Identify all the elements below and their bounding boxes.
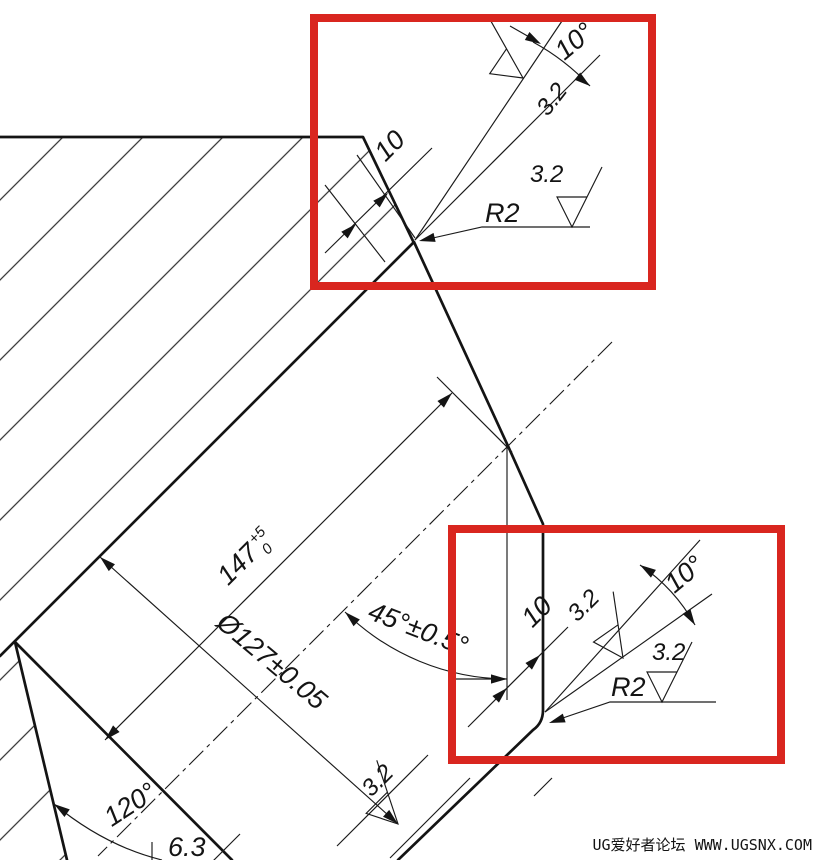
arrowhead xyxy=(491,674,507,683)
hatch-remnant-line xyxy=(212,834,240,860)
hatch-remnant-line xyxy=(390,778,470,858)
dim-text-fillet-radius-bottom: R2 xyxy=(611,672,646,702)
arrowhead xyxy=(525,32,543,48)
fillet-callout-top: R2 3.2 xyxy=(418,161,602,245)
roughness-symbol-icon xyxy=(557,167,602,227)
dim-text-taper-angle-bottom: 10° xyxy=(659,549,710,598)
dim-text-fillet-radius-top: R2 xyxy=(485,198,520,228)
roughness-symbol-icon xyxy=(465,20,540,91)
dim-text-cone-angle: 45°±0.5° xyxy=(364,596,472,661)
dim-text-diameter: Ø127±0.05 xyxy=(210,606,333,716)
r2-leader-line xyxy=(424,227,590,240)
drawing-canvas: 10 10° 3.2 R2 3.2 147 +5 0 xyxy=(0,0,818,860)
vertex-extension-line xyxy=(437,377,512,452)
dim-cone-angle: 45°±0.5° xyxy=(342,596,507,684)
roughness-value: 3.2 xyxy=(530,161,563,188)
groove-callouts: 120° 6.3 3.2 xyxy=(51,759,419,860)
dim-text-land-width: 10 xyxy=(515,590,557,632)
roughness-value: 3.2 xyxy=(562,584,605,627)
fillet-callout-bottom: R2 3.2 xyxy=(548,639,716,727)
dim-tol-lower: 0 xyxy=(259,540,277,558)
dim-text-taper-angle-top: 10° xyxy=(549,16,600,65)
roughness-value: 3.2 xyxy=(531,78,573,121)
watermark-text: UG爱好者论坛 WWW.UGSNX.COM xyxy=(593,836,813,854)
arrowhead xyxy=(575,73,593,90)
dim-text-groove-width: 6.3 xyxy=(168,832,206,860)
section-hatch-area xyxy=(0,137,414,860)
highlight-box-bottom xyxy=(452,529,781,760)
arrowhead xyxy=(683,609,699,627)
roughness-taper-top: 3.2 xyxy=(465,20,573,121)
land-dim-line xyxy=(468,627,568,727)
outline-right-profile xyxy=(398,242,543,860)
roughness-value: 3.2 xyxy=(356,759,399,802)
roughness-value: 3.2 xyxy=(652,639,685,666)
technical-drawing: 10 10° 3.2 R2 3.2 147 +5 0 xyxy=(0,0,818,860)
hatch-remnant-line xyxy=(534,778,552,796)
r2-leader-line xyxy=(554,702,716,721)
arrowhead xyxy=(548,714,566,728)
roughness-taper-bottom: 3.2 xyxy=(562,584,647,666)
